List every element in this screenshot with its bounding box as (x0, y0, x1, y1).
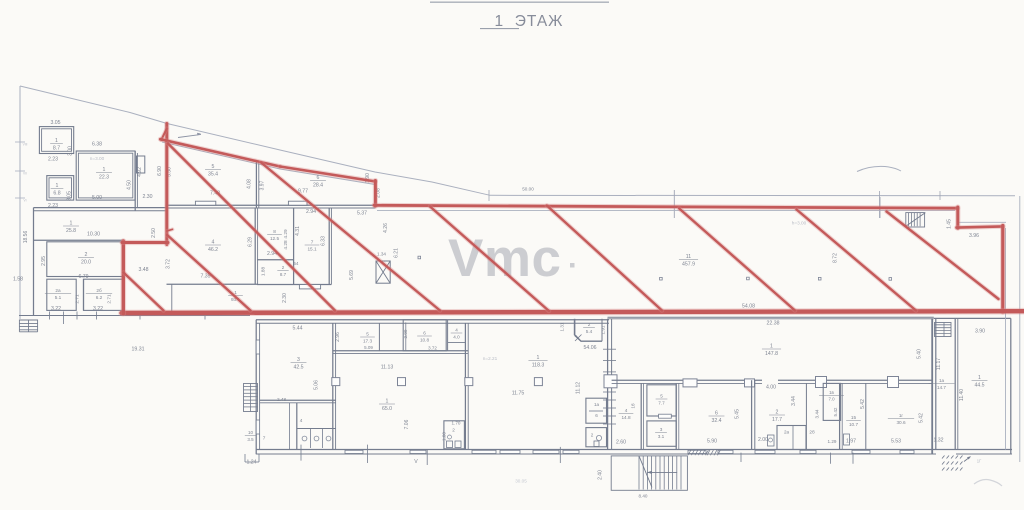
svg-text:1а: 1а (939, 378, 945, 383)
svg-text:3: 3 (297, 357, 300, 363)
svg-text:4.0: 4.0 (453, 334, 460, 339)
svg-text:3.48: 3.48 (138, 267, 148, 273)
svg-text:1: 1 (770, 344, 773, 350)
svg-text:147.8: 147.8 (765, 351, 778, 357)
svg-text:4.26: 4.26 (383, 223, 389, 233)
svg-text:3.22: 3.22 (51, 306, 61, 312)
svg-text:17.3: 17.3 (363, 339, 373, 344)
svg-text:6.33: 6.33 (321, 236, 327, 246)
svg-text:h=3.00: h=3.00 (792, 221, 807, 226)
svg-text:22.3: 22.3 (99, 175, 109, 181)
svg-text:8.72: 8.72 (833, 253, 839, 263)
svg-text:7.06: 7.06 (404, 419, 410, 429)
svg-text:4.92: 4.92 (137, 167, 143, 177)
svg-text:5.09: 5.09 (364, 345, 373, 350)
svg-text:4: 4 (212, 240, 215, 246)
svg-text:1 ЭТАЖ: 1 ЭТАЖ (495, 13, 564, 30)
svg-text:10.30: 10.30 (87, 232, 100, 238)
svg-text:8: 8 (273, 229, 276, 234)
svg-text:457.9: 457.9 (682, 262, 695, 268)
svg-text:2.96: 2.96 (335, 332, 341, 342)
svg-text:2: 2 (85, 252, 88, 258)
svg-text:54.06: 54.06 (584, 345, 597, 351)
svg-text:3.44: 3.44 (791, 396, 797, 406)
svg-text:V: V (414, 459, 418, 465)
svg-text:44.5: 44.5 (974, 383, 984, 389)
svg-text:4.00: 4.00 (766, 385, 776, 391)
svg-text:8.7: 8.7 (280, 272, 287, 277)
svg-text:19.31: 19.31 (132, 347, 145, 353)
svg-text:2.60: 2.60 (616, 440, 626, 446)
svg-text:11.75: 11.75 (512, 391, 525, 397)
svg-text:2а: 2а (55, 288, 61, 293)
svg-text:20.0: 20.0 (81, 260, 91, 266)
svg-text:1.32: 1.32 (933, 438, 943, 444)
svg-text:2: 2 (591, 433, 594, 438)
svg-text:1.34: 1.34 (377, 251, 386, 256)
svg-text:5.53: 5.53 (891, 439, 901, 445)
svg-text:7.0: 7.0 (828, 397, 835, 402)
svg-text:7: 7 (311, 240, 314, 245)
svg-text:5.69: 5.69 (349, 270, 355, 280)
svg-text:8.40: 8.40 (639, 494, 648, 499)
svg-text:14.8: 14.8 (621, 415, 631, 420)
svg-text:1.58: 1.58 (13, 277, 23, 283)
svg-text:1: 1 (103, 167, 106, 173)
svg-text:5.37: 5.37 (357, 211, 367, 217)
svg-text:5.44: 5.44 (292, 326, 302, 332)
svg-text:30.6: 30.6 (896, 420, 906, 425)
svg-text:5.42: 5.42 (860, 399, 866, 409)
svg-text:3.90: 3.90 (975, 329, 985, 335)
svg-text:7: 7 (263, 436, 266, 441)
svg-text:5.06: 5.06 (314, 380, 320, 390)
svg-text:3: 3 (660, 427, 663, 432)
svg-text:1г: 1г (899, 413, 904, 418)
svg-text:25.8: 25.8 (66, 228, 76, 234)
svg-text:VII: VII (23, 172, 27, 176)
svg-text:3.72: 3.72 (428, 346, 437, 351)
svg-text:1: 1 (537, 355, 540, 361)
svg-text:2.30: 2.30 (142, 194, 152, 200)
svg-text:10.8: 10.8 (420, 338, 430, 343)
svg-text:6: 6 (423, 331, 426, 336)
svg-text:2.48: 2.48 (277, 397, 287, 402)
svg-text:42.5: 42.5 (293, 365, 303, 371)
svg-text:4.28: 4.28 (283, 240, 288, 250)
svg-text:118.3: 118.3 (532, 363, 545, 369)
svg-text:4.08: 4.08 (246, 179, 252, 189)
svg-text:1в: 1в (829, 390, 834, 395)
svg-text:1.70: 1.70 (452, 421, 461, 426)
svg-text:5: 5 (212, 164, 215, 170)
svg-text:11.17: 11.17 (936, 358, 942, 370)
svg-text:1.31: 1.31 (560, 322, 565, 331)
svg-text:65.0: 65.0 (382, 406, 392, 412)
svg-text:32.4: 32.4 (711, 418, 721, 424)
svg-text:2.99: 2.99 (403, 329, 408, 338)
svg-text:5.4: 5.4 (586, 329, 593, 334)
svg-text:22.38: 22.38 (767, 320, 780, 326)
svg-text:15.1: 15.1 (307, 247, 317, 252)
svg-text:1а: 1а (594, 402, 600, 407)
svg-text:15: 15 (851, 415, 857, 420)
svg-text:5.1: 5.1 (55, 295, 62, 300)
svg-text:35.4: 35.4 (208, 172, 218, 178)
svg-text:46.2: 46.2 (208, 247, 218, 253)
svg-text:1.24: 1.24 (246, 460, 256, 466)
svg-text:28.4: 28.4 (313, 183, 323, 189)
svg-text:6.29: 6.29 (248, 237, 254, 247)
svg-text:14.7: 14.7 (937, 385, 946, 390)
svg-text:1: 1 (386, 399, 389, 405)
svg-text:2.95: 2.95 (41, 256, 47, 266)
svg-text:n=3.00: n=3.00 (90, 156, 105, 161)
svg-text:1.97: 1.97 (846, 439, 856, 445)
svg-text:11.12: 11.12 (576, 382, 582, 394)
svg-text:6.90: 6.90 (157, 166, 163, 176)
svg-text:2.71: 2.71 (75, 294, 80, 304)
svg-text:1: 1 (55, 138, 58, 144)
svg-text:6: 6 (317, 175, 320, 181)
svg-text:2: 2 (588, 322, 591, 327)
svg-text:2.23: 2.23 (48, 156, 58, 162)
svg-text:2: 2 (776, 410, 779, 416)
svg-text:3.97: 3.97 (259, 180, 265, 190)
svg-text:3.96: 3.96 (969, 233, 979, 239)
svg-text:VIII: VIII (23, 143, 28, 147)
svg-text:2.50: 2.50 (151, 228, 157, 238)
svg-text:7.7: 7.7 (658, 401, 665, 406)
svg-text:6.38: 6.38 (92, 141, 102, 147)
svg-text:18.56: 18.56 (23, 231, 29, 244)
svg-text:12.5: 12.5 (270, 236, 280, 241)
svg-text:4: 4 (300, 418, 303, 423)
svg-text:1: 1 (70, 221, 73, 227)
svg-text:30.05: 30.05 (515, 479, 527, 484)
svg-text:5: 5 (366, 332, 369, 337)
svg-text:6.21: 6.21 (394, 248, 400, 258)
svg-text:1: 1 (978, 375, 981, 381)
svg-text:6.8: 6.8 (53, 191, 60, 197)
svg-text:4.31: 4.31 (295, 226, 301, 236)
svg-text:8.7: 8.7 (53, 146, 60, 152)
svg-text:2.00: 2.00 (758, 437, 768, 443)
svg-text:11.13: 11.13 (381, 364, 394, 370)
svg-text:2а: 2а (784, 430, 790, 435)
svg-text:3.00: 3.00 (67, 146, 73, 156)
svg-text:50.00: 50.00 (522, 187, 534, 192)
svg-text:3.44: 3.44 (815, 409, 820, 418)
svg-text:2: 2 (452, 428, 455, 433)
svg-text:2б: 2б (809, 430, 815, 435)
svg-text:4.50: 4.50 (127, 180, 133, 190)
svg-text:1б: 1б (631, 403, 636, 408)
svg-text:5.40: 5.40 (917, 349, 923, 359)
svg-text:3.5: 3.5 (247, 437, 254, 442)
svg-text:10: 10 (248, 430, 254, 435)
svg-text:2б: 2б (96, 288, 102, 293)
svg-text:5.42: 5.42 (833, 407, 838, 416)
svg-text:1.29: 1.29 (828, 439, 837, 444)
svg-text:3.22: 3.22 (93, 306, 103, 312)
svg-text:5.42: 5.42 (919, 413, 925, 423)
svg-text:11.40: 11.40 (959, 389, 965, 401)
svg-text:11: 11 (686, 254, 691, 260)
svg-text:5.90: 5.90 (707, 439, 717, 445)
svg-text:3.72: 3.72 (165, 259, 171, 269)
svg-text:10.7: 10.7 (849, 422, 859, 427)
svg-text:4.29: 4.29 (283, 229, 288, 239)
svg-text:2.94: 2.94 (306, 209, 316, 215)
svg-text:1.91: 1.91 (601, 325, 606, 334)
svg-text:64: 64 (294, 261, 299, 266)
svg-text:2.40: 2.40 (598, 470, 604, 480)
svg-text:1.80: 1.80 (442, 432, 447, 441)
svg-text:3.05: 3.05 (67, 191, 73, 201)
svg-text:2.71: 2.71 (107, 294, 112, 304)
svg-text:1.88: 1.88 (261, 267, 266, 277)
svg-text:5.00: 5.00 (92, 195, 102, 201)
svg-text:1: 1 (56, 183, 59, 189)
svg-text:2.30: 2.30 (282, 293, 288, 303)
svg-text:5: 5 (660, 394, 663, 399)
svg-text:4: 4 (625, 408, 628, 413)
svg-text:6: 6 (715, 411, 718, 417)
svg-text:6: 6 (595, 413, 598, 418)
svg-text:6.2: 6.2 (96, 295, 103, 300)
svg-text:4: 4 (455, 328, 458, 333)
svg-text:17.7: 17.7 (772, 417, 782, 423)
svg-text:1.45: 1.45 (946, 219, 952, 229)
svg-text:3.05: 3.05 (50, 120, 60, 126)
svg-text:VI: VI (23, 199, 26, 203)
svg-text:5.45: 5.45 (735, 409, 741, 419)
svg-text:1Г: 1Г (977, 459, 982, 464)
svg-text:3.1: 3.1 (658, 434, 665, 439)
svg-text:2.23: 2.23 (48, 203, 58, 209)
svg-text:n=2.21: n=2.21 (483, 356, 498, 361)
